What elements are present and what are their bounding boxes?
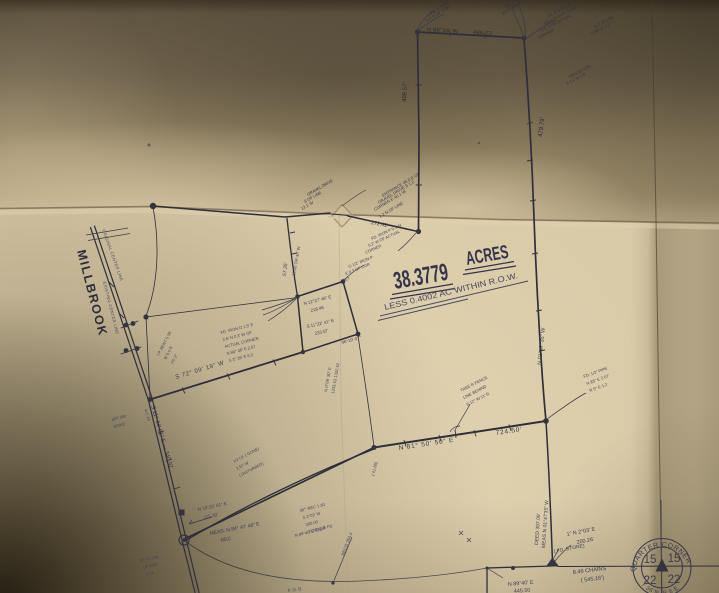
svg-text:498.57': 498.57' [402, 82, 409, 102]
svg-text:445.50: 445.50 [514, 588, 531, 593]
svg-text:22: 22 [668, 574, 681, 586]
svg-text:15: 15 [644, 554, 657, 566]
